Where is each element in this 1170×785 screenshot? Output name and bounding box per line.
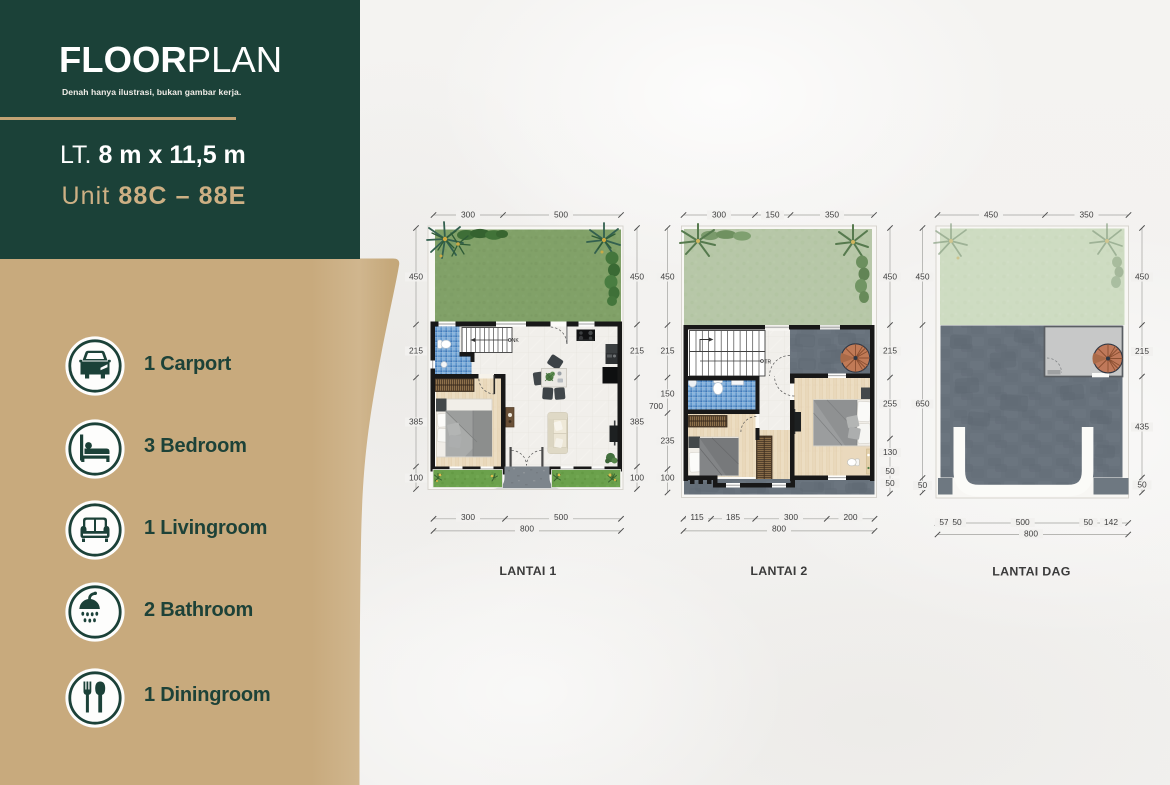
svg-text:500: 500	[554, 210, 568, 220]
svg-text:215: 215	[883, 346, 897, 356]
svg-text:700: 700	[649, 401, 663, 411]
svg-text:450: 450	[984, 210, 998, 220]
svg-text:300: 300	[784, 512, 798, 522]
svg-text:130: 130	[883, 447, 897, 457]
svg-text:450: 450	[883, 272, 897, 282]
svg-text:50: 50	[1137, 480, 1147, 490]
svg-text:500: 500	[1016, 517, 1030, 527]
svg-text:50: 50	[885, 466, 895, 476]
svg-text:NK: NK	[512, 338, 520, 344]
svg-text:800: 800	[772, 523, 786, 533]
svg-text:450: 450	[630, 272, 644, 282]
svg-text:235: 235	[661, 436, 675, 446]
svg-text:57: 57	[939, 517, 949, 527]
svg-text:LANTAI DAG: LANTAI DAG	[992, 565, 1070, 579]
svg-text:435: 435	[1135, 422, 1149, 432]
svg-text:300: 300	[461, 512, 475, 522]
svg-text:LANTAI 2: LANTAI 2	[750, 564, 807, 578]
svg-text:255: 255	[883, 399, 897, 409]
svg-text:450: 450	[916, 272, 930, 282]
svg-text:50: 50	[885, 478, 895, 488]
svg-text:450: 450	[661, 272, 675, 282]
svg-text:500: 500	[554, 512, 568, 522]
svg-text:385: 385	[630, 417, 644, 427]
svg-text:100: 100	[409, 473, 423, 483]
svg-text:350: 350	[1080, 210, 1094, 220]
svg-text:LANTAI 1: LANTAI 1	[499, 564, 556, 578]
svg-text:300: 300	[712, 210, 726, 220]
svg-text:215: 215	[661, 346, 675, 356]
svg-text:150: 150	[766, 210, 780, 220]
svg-text:142: 142	[1104, 517, 1118, 527]
svg-text:50: 50	[918, 480, 928, 490]
svg-text:350: 350	[825, 210, 839, 220]
svg-text:215: 215	[1135, 346, 1149, 356]
svg-text:50: 50	[1084, 517, 1094, 527]
svg-text:215: 215	[630, 346, 644, 356]
svg-text:100: 100	[630, 473, 644, 483]
svg-text:800: 800	[520, 523, 534, 533]
svg-text:800: 800	[1024, 529, 1038, 539]
svg-text:300: 300	[461, 210, 475, 220]
svg-text:100: 100	[661, 473, 675, 483]
svg-text:385: 385	[409, 417, 423, 427]
svg-text:215: 215	[409, 346, 423, 356]
svg-text:450: 450	[1135, 272, 1149, 282]
svg-text:150: 150	[661, 389, 675, 399]
svg-text:200: 200	[844, 512, 858, 522]
svg-text:185: 185	[726, 512, 740, 522]
svg-text:115: 115	[690, 512, 704, 522]
svg-text:TR: TR	[765, 359, 772, 365]
svg-text:50: 50	[952, 517, 962, 527]
svg-text:450: 450	[409, 272, 423, 282]
svg-text:650: 650	[916, 399, 930, 409]
